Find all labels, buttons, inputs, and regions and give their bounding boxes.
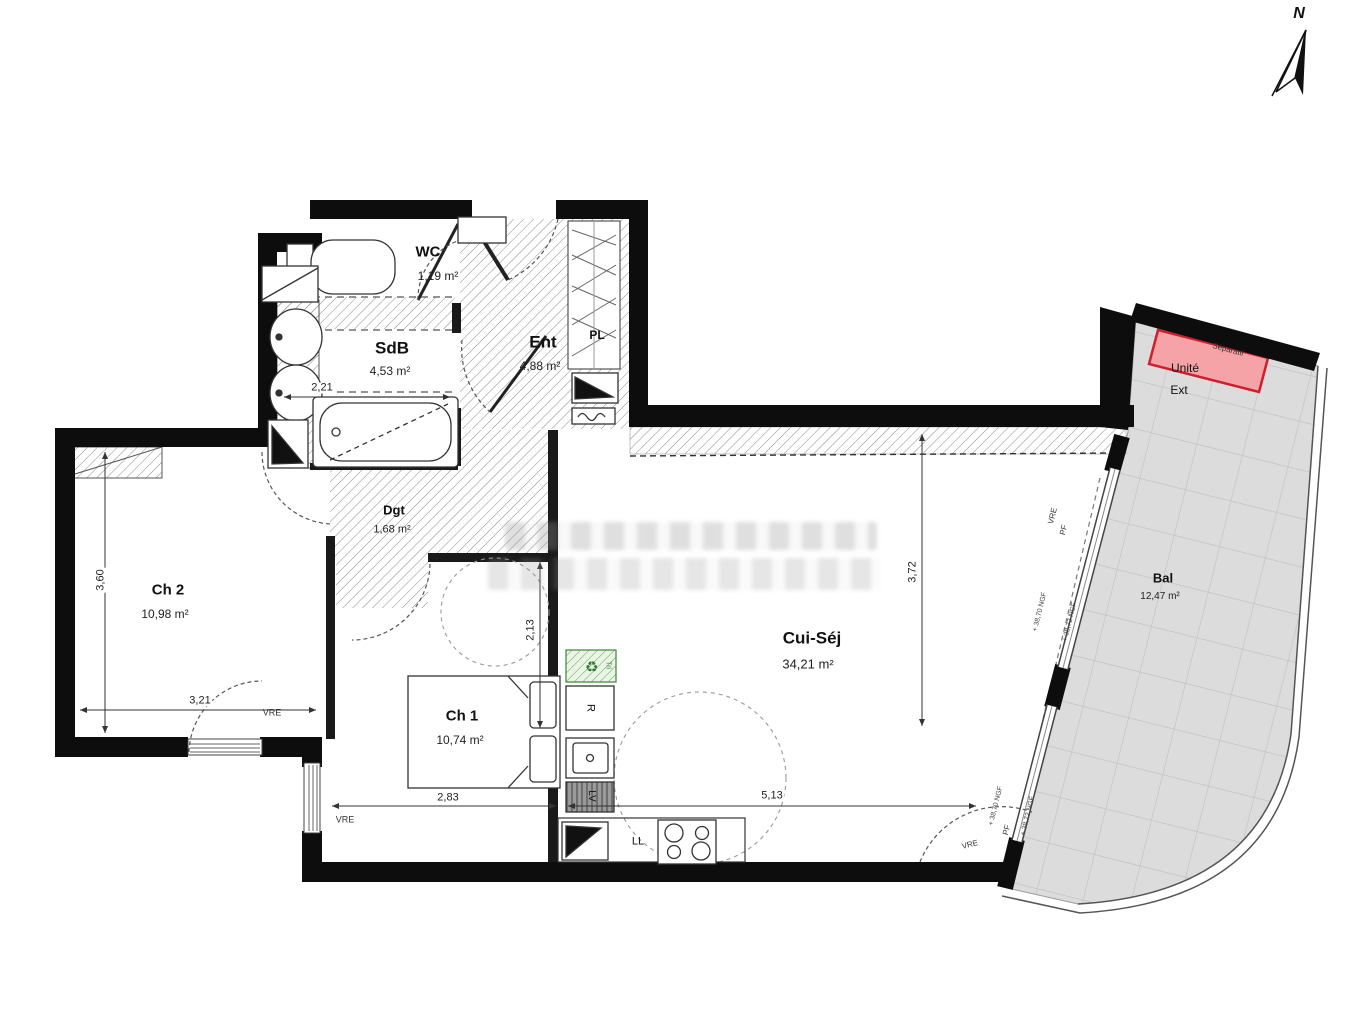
room-label-sdb: SdB	[375, 340, 409, 357]
unite-ext-label: Unité	[1171, 362, 1199, 374]
room-label-pl: PL	[589, 329, 604, 341]
room-area-ent: 4,88 m²	[520, 360, 561, 372]
pillow-icon	[530, 682, 556, 728]
unite-ext-label: Ext	[1170, 384, 1187, 396]
room-area-cui-sej: 34,21 m²	[782, 658, 833, 671]
fridge-label: R	[585, 704, 596, 712]
room-area-ch2: 10,98 m²	[141, 608, 188, 620]
washer-label: LL	[632, 837, 644, 848]
dim-ch2-width: 3,21	[187, 696, 212, 707]
wall-niche-icon	[458, 217, 506, 243]
room-area-bal: 12,47 m²	[1140, 592, 1179, 602]
room-label-ch1: Ch 1	[446, 709, 479, 724]
room-label-bal: Bal	[1153, 572, 1173, 585]
toilet-bowl-icon	[311, 240, 395, 294]
dim-sdb-width: 2,21	[309, 383, 334, 394]
dim-ch1-height: 2,13	[526, 617, 537, 642]
north-arrow-icon	[1272, 30, 1306, 96]
room-label-wc: WC	[416, 245, 441, 260]
dim-cui-height: 3,72	[908, 559, 919, 584]
room-area-wc: 1,19 m²	[418, 270, 459, 282]
room-label-ent: Ent	[529, 334, 556, 351]
vre-label-ch2-window: VRE	[263, 709, 282, 718]
compass-n-label: N	[1293, 6, 1305, 22]
pillow-icon	[530, 736, 556, 782]
recycle-icon: ♻	[585, 659, 598, 676]
room-area-dgt: 1,68 m²	[373, 525, 410, 536]
floor-plan-drawing: ♻	[0, 0, 1346, 1018]
room-area-ch1: 10,74 m²	[436, 734, 483, 746]
room-area-sdb: 4,53 m²	[370, 365, 411, 377]
room-label-dgt: Dgt	[383, 504, 405, 517]
watermark	[488, 558, 880, 590]
room-label-cui-sej: Cui-Séj	[783, 630, 842, 647]
dim-cui-width: 5,13	[759, 791, 784, 802]
vre-label-ch1-window: VRE	[336, 816, 355, 825]
watermark	[505, 522, 877, 550]
tri-label: Tri	[605, 661, 612, 669]
dishwasher-label: LV	[586, 790, 596, 802]
dim-ch1-width: 2,83	[435, 793, 460, 804]
floor-plan-canvas: ♻ N WC 1,19 m² SdB 4,53 m² 2,21 Ent 4,88…	[0, 0, 1346, 1018]
room-label-ch2: Ch 2	[152, 583, 185, 598]
dim-ch2-height: 3,60	[96, 567, 107, 592]
